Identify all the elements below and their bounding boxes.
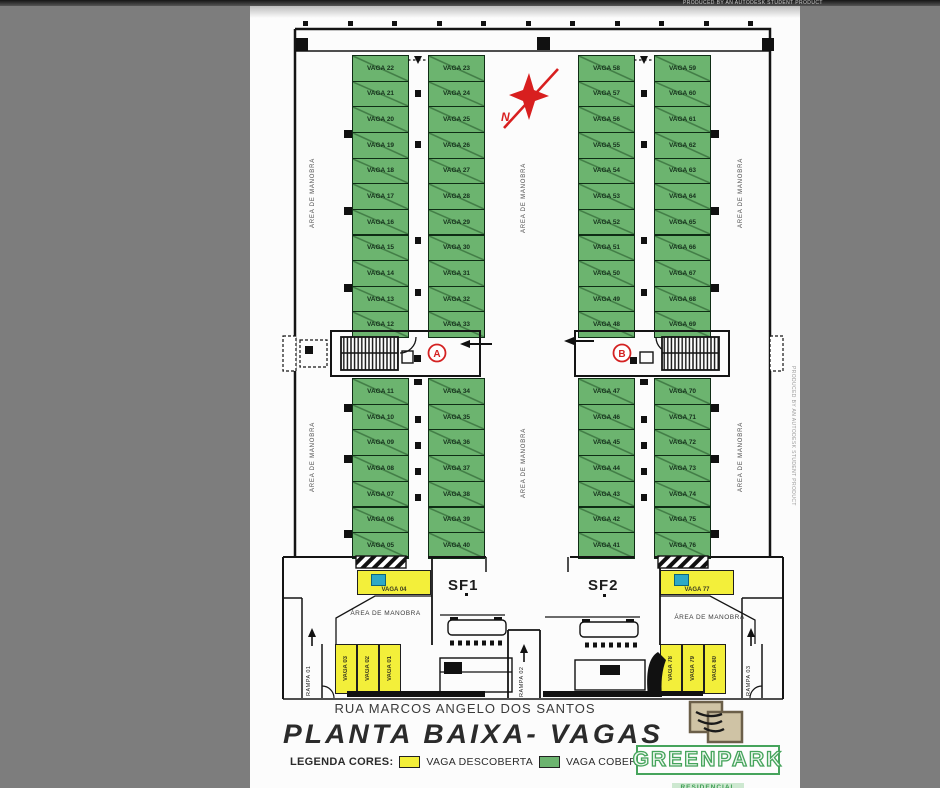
parking-space-covered: VAGA 06 bbox=[352, 507, 409, 534]
parking-space-covered: VAGA 66 bbox=[654, 235, 711, 262]
parking-space-covered: VAGA 19 bbox=[352, 132, 409, 159]
parking-space-covered: VAGA 70 bbox=[654, 378, 711, 405]
parking-space-covered: VAGA 20 bbox=[352, 106, 409, 133]
accessible-parking-icon bbox=[371, 574, 386, 586]
parking-space-uncovered: VAGA 01 bbox=[379, 644, 401, 694]
legend-swatch-covered bbox=[539, 756, 560, 768]
parking-space-covered: VAGA 15 bbox=[352, 235, 409, 262]
parking-space-covered: VAGA 43 bbox=[578, 481, 635, 508]
door-marker bbox=[415, 442, 421, 449]
wall-column bbox=[344, 530, 352, 538]
brand-subtitle-wrap: RESIDENCIAL bbox=[636, 776, 780, 788]
door-marker bbox=[641, 141, 647, 148]
parking-space-covered: VAGA 44 bbox=[578, 455, 635, 482]
drawing-title: PLANTA BAIXA- VAGAS bbox=[283, 719, 663, 750]
parking-space-covered: VAGA 07 bbox=[352, 481, 409, 508]
parking-space-covered: VAGA 38 bbox=[428, 481, 485, 508]
accessible-parking-icon bbox=[674, 574, 689, 586]
wall-column bbox=[344, 455, 352, 463]
ramp-01-label: RAMPA 01 bbox=[306, 650, 312, 696]
parking-space-covered: VAGA 59 bbox=[654, 55, 711, 82]
door-marker bbox=[415, 237, 421, 244]
door-marker bbox=[415, 468, 421, 475]
parking-space-covered: VAGA 73 bbox=[654, 455, 711, 482]
parking-space-covered: VAGA 71 bbox=[654, 404, 711, 431]
parking-space-covered: VAGA 42 bbox=[578, 507, 635, 534]
parking-space-covered: VAGA 34 bbox=[428, 378, 485, 405]
parking-space-covered: VAGA 64 bbox=[654, 183, 711, 210]
parking-space-covered: VAGA 09 bbox=[352, 429, 409, 456]
legend-swatch-uncovered bbox=[399, 756, 420, 768]
manobra-label-bottom-right: ÁREA DE MANOBRA bbox=[662, 614, 757, 621]
parking-space-covered: VAGA 72 bbox=[654, 429, 711, 456]
manobra-label-right-upper: ÁREA DE MANOBRA bbox=[738, 148, 744, 238]
parking-space-covered: VAGA 12 bbox=[352, 311, 409, 338]
door-marker bbox=[641, 416, 647, 423]
wall-column bbox=[711, 530, 719, 538]
parking-space-covered: VAGA 26 bbox=[428, 132, 485, 159]
parking-space-covered: VAGA 74 bbox=[654, 481, 711, 508]
column-tick bbox=[348, 21, 353, 26]
wall-column bbox=[711, 130, 719, 138]
door-marker bbox=[641, 442, 647, 449]
parking-space-covered: VAGA 23 bbox=[428, 55, 485, 82]
parking-space-uncovered: VAGA 79 bbox=[682, 644, 704, 694]
wall-column bbox=[711, 284, 719, 292]
sf1-label: SF1 bbox=[448, 577, 479, 594]
parking-space-covered: VAGA 05 bbox=[352, 532, 409, 559]
parking-space-covered: VAGA 76 bbox=[654, 532, 711, 559]
manobra-label-left-lower: ÁREA DE MANOBRA bbox=[310, 412, 316, 502]
parking-space-covered: VAGA 60 bbox=[654, 81, 711, 108]
parking-space-covered: VAGA 40 bbox=[428, 532, 485, 559]
parking-space-covered: VAGA 33 bbox=[428, 311, 485, 338]
parking-space-covered: VAGA 14 bbox=[352, 260, 409, 287]
column-tick bbox=[748, 21, 753, 26]
parking-space-covered: VAGA 48 bbox=[578, 311, 635, 338]
parking-space-covered: VAGA 28 bbox=[428, 183, 485, 210]
street-name: RUA MARCOS ANGELO DOS SANTOS bbox=[270, 701, 660, 716]
parking-space-uncovered: VAGA 03 bbox=[335, 644, 357, 694]
column-tick bbox=[481, 21, 486, 26]
parking-space-uncovered: VAGA 02 bbox=[357, 644, 379, 694]
parking-space-covered: VAGA 41 bbox=[578, 532, 635, 559]
brand-subtitle: RESIDENCIAL bbox=[672, 783, 743, 788]
legend-item-uncovered: VAGA DESCOBERTA bbox=[426, 756, 533, 768]
wall-column bbox=[711, 207, 719, 215]
parking-space-covered: VAGA 17 bbox=[352, 183, 409, 210]
wall-column bbox=[344, 284, 352, 292]
wall-column bbox=[344, 207, 352, 215]
door-marker bbox=[641, 237, 647, 244]
parking-space-covered: VAGA 53 bbox=[578, 183, 635, 210]
parking-space-covered: VAGA 67 bbox=[654, 260, 711, 287]
parking-space-covered: VAGA 39 bbox=[428, 507, 485, 534]
parking-space-covered: VAGA 36 bbox=[428, 429, 485, 456]
brand-logo-icon bbox=[682, 700, 752, 746]
parking-space-covered: VAGA 63 bbox=[654, 158, 711, 185]
door-marker bbox=[641, 90, 647, 97]
parking-space-covered: VAGA 50 bbox=[578, 260, 635, 287]
parking-space-covered: VAGA 51 bbox=[578, 235, 635, 262]
parking-space-covered: VAGA 13 bbox=[352, 286, 409, 313]
parking-space-covered: VAGA 57 bbox=[578, 81, 635, 108]
parking-space-covered: VAGA 61 bbox=[654, 106, 711, 133]
parking-space-covered: VAGA 27 bbox=[428, 158, 485, 185]
manobra-label-left-upper: ÁREA DE MANOBRA bbox=[310, 148, 316, 238]
parking-space-covered: VAGA 21 bbox=[352, 81, 409, 108]
parking-space-covered: VAGA 49 bbox=[578, 286, 635, 313]
parking-space-covered: VAGA 75 bbox=[654, 507, 711, 534]
legend-label: LEGENDA CORES: bbox=[290, 756, 393, 768]
column-tick bbox=[303, 21, 308, 26]
parking-space-covered: VAGA 31 bbox=[428, 260, 485, 287]
wall-column bbox=[344, 130, 352, 138]
column-tick bbox=[392, 21, 397, 26]
parking-space-covered: VAGA 29 bbox=[428, 209, 485, 236]
ramp-02-label: RAMPA 02 bbox=[519, 665, 525, 697]
parking-space-covered: VAGA 22 bbox=[352, 55, 409, 82]
brand-name: GREENPARK bbox=[633, 748, 784, 772]
door-marker bbox=[641, 289, 647, 296]
manobra-label-center-lower: ÁREA DE MANOBRA bbox=[521, 415, 527, 510]
parking-space-covered: VAGA 62 bbox=[654, 132, 711, 159]
legend: LEGENDA CORES: VAGA DESCOBERTA VAGA COBE… bbox=[290, 756, 650, 768]
parking-space-covered: VAGA 35 bbox=[428, 404, 485, 431]
manobra-label-bottom-left: ÁREA DE MANOBRA bbox=[338, 610, 433, 617]
parking-space-covered: VAGA 52 bbox=[578, 209, 635, 236]
parking-space-covered: VAGA 69 bbox=[654, 311, 711, 338]
parking-space-uncovered: VAGA 80 bbox=[704, 644, 726, 694]
door-marker bbox=[415, 141, 421, 148]
autodesk-watermark-top: PRODUCED BY AN AUTODESK STUDENT PRODUCT bbox=[683, 0, 823, 6]
sf2-label: SF2 bbox=[588, 577, 619, 594]
parking-space-covered: VAGA 47 bbox=[578, 378, 635, 405]
manobra-label-right-lower: ÁREA DE MANOBRA bbox=[738, 412, 744, 502]
parking-space-uncovered: VAGA 78 bbox=[660, 644, 682, 694]
parking-space-covered: VAGA 32 bbox=[428, 286, 485, 313]
parking-space-covered: VAGA 45 bbox=[578, 429, 635, 456]
ramp-03-label: RAMPA 03 bbox=[746, 650, 752, 696]
door-marker bbox=[641, 494, 647, 501]
parking-space-covered: VAGA 11 bbox=[352, 378, 409, 405]
brand-box: GREENPARK bbox=[636, 745, 780, 775]
parking-space-covered: VAGA 25 bbox=[428, 106, 485, 133]
door-marker bbox=[415, 416, 421, 423]
column-tick bbox=[704, 21, 709, 26]
wall-column bbox=[711, 455, 719, 463]
column-tick bbox=[570, 21, 575, 26]
parking-space-covered: VAGA 54 bbox=[578, 158, 635, 185]
door-marker bbox=[415, 90, 421, 97]
parking-space-covered: VAGA 58 bbox=[578, 55, 635, 82]
column-tick bbox=[437, 21, 442, 26]
parking-space-covered: VAGA 68 bbox=[654, 286, 711, 313]
parking-cells-layer: VAGA 22VAGA 21VAGA 20VAGA 19VAGA 18VAGA … bbox=[0, 0, 940, 788]
parking-space-uncovered: VAGA 77 bbox=[660, 570, 734, 595]
wall-column bbox=[711, 404, 719, 412]
column-tick bbox=[659, 21, 664, 26]
parking-space-covered: VAGA 37 bbox=[428, 455, 485, 482]
wall-column bbox=[344, 404, 352, 412]
parking-space-covered: VAGA 30 bbox=[428, 235, 485, 262]
parking-space-covered: VAGA 10 bbox=[352, 404, 409, 431]
parking-space-covered: VAGA 18 bbox=[352, 158, 409, 185]
door-marker bbox=[415, 494, 421, 501]
door-marker bbox=[641, 468, 647, 475]
parking-space-covered: VAGA 08 bbox=[352, 455, 409, 482]
parking-space-covered: VAGA 16 bbox=[352, 209, 409, 236]
column-tick bbox=[526, 21, 531, 26]
parking-space-uncovered: VAGA 04 bbox=[357, 570, 431, 595]
parking-space-covered: VAGA 46 bbox=[578, 404, 635, 431]
door-marker bbox=[415, 289, 421, 296]
manobra-label-center-upper: ÁREA DE MANOBRA bbox=[521, 150, 527, 245]
parking-space-covered: VAGA 55 bbox=[578, 132, 635, 159]
parking-space-covered: VAGA 65 bbox=[654, 209, 711, 236]
parking-space-covered: VAGA 24 bbox=[428, 81, 485, 108]
parking-space-covered: VAGA 56 bbox=[578, 106, 635, 133]
autodesk-watermark-right: PRODUCED BY AN AUTODESK STUDENT PRODUCT bbox=[790, 366, 796, 506]
floor-plan-page: PRODUCED BY AN AUTODESK STUDENT PRODUCT … bbox=[0, 0, 940, 788]
column-tick bbox=[615, 21, 620, 26]
